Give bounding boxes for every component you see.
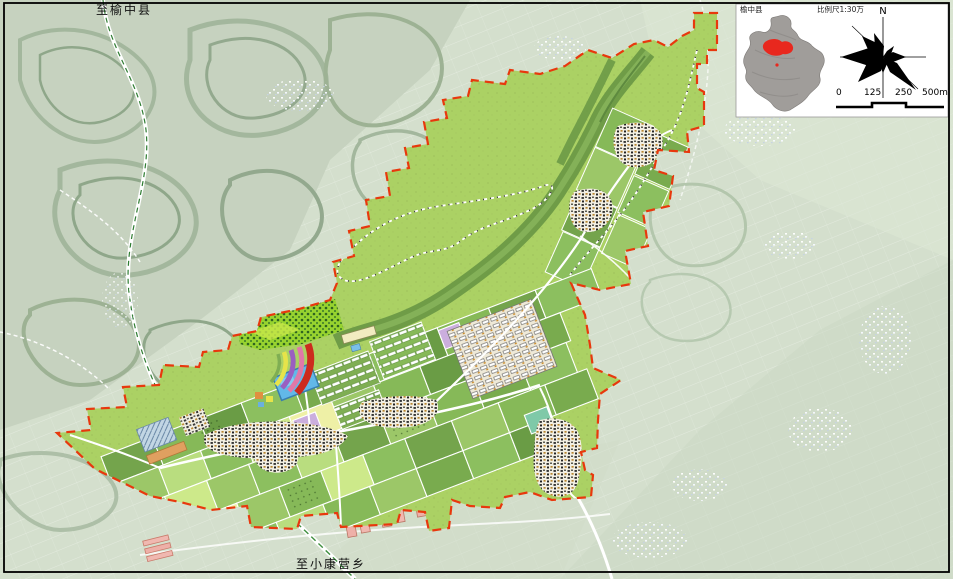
compass-north-label: N xyxy=(879,6,886,17)
map-image[interactable]: 至榆中县 至小康营乡 榆中县 比例尺1:30万 N xyxy=(0,0,953,579)
inset-label-left: 榆中县 xyxy=(740,4,763,14)
scale-tick-0: 0 xyxy=(836,88,842,98)
scale-tick-500m: 500m xyxy=(922,88,948,98)
map-viewer: 至榆中县 至小康营乡 榆中县 比例尺1:30万 N xyxy=(0,0,953,579)
road-label-south: 至小康营乡 xyxy=(296,556,366,571)
scale-tick-250: 250 xyxy=(895,88,912,98)
inset-panel: 榆中县 比例尺1:30万 N xyxy=(736,4,948,117)
road-label-north: 至榆中县 xyxy=(96,2,152,17)
village-southeast xyxy=(534,419,582,497)
inset-label-right: 比例尺1:30万 xyxy=(817,4,864,14)
scale-tick-125: 125 xyxy=(864,88,881,98)
